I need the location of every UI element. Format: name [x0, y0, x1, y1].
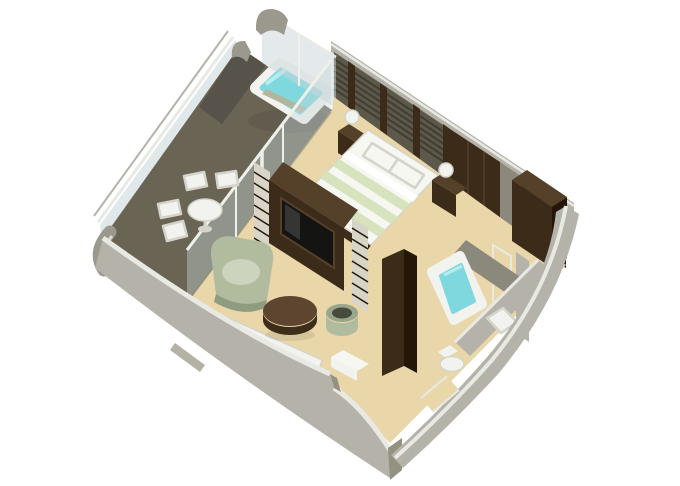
coffee-table-top [263, 296, 317, 326]
floorplan-stage [0, 0, 680, 486]
wall-post [380, 83, 387, 137]
slat-screen-right [352, 218, 368, 312]
dining-table-top [188, 199, 222, 221]
wall-post [413, 104, 420, 161]
bathroom-partition-front [382, 249, 404, 376]
wall-post [348, 61, 355, 113]
dining-chair [184, 172, 207, 190]
armchair-seat [222, 259, 260, 285]
toilet-bowl [440, 357, 464, 372]
dining-chair [216, 171, 238, 188]
sphere-lamp-left [345, 110, 359, 124]
sphere-lamp-right [439, 163, 453, 177]
dining-chair [158, 200, 181, 218]
suite-floorplan-rendering [0, 0, 680, 486]
dining-chair [163, 221, 187, 241]
bathroom-partition-side [404, 249, 417, 373]
table-base [198, 226, 212, 233]
stool-top-inset [332, 308, 352, 319]
